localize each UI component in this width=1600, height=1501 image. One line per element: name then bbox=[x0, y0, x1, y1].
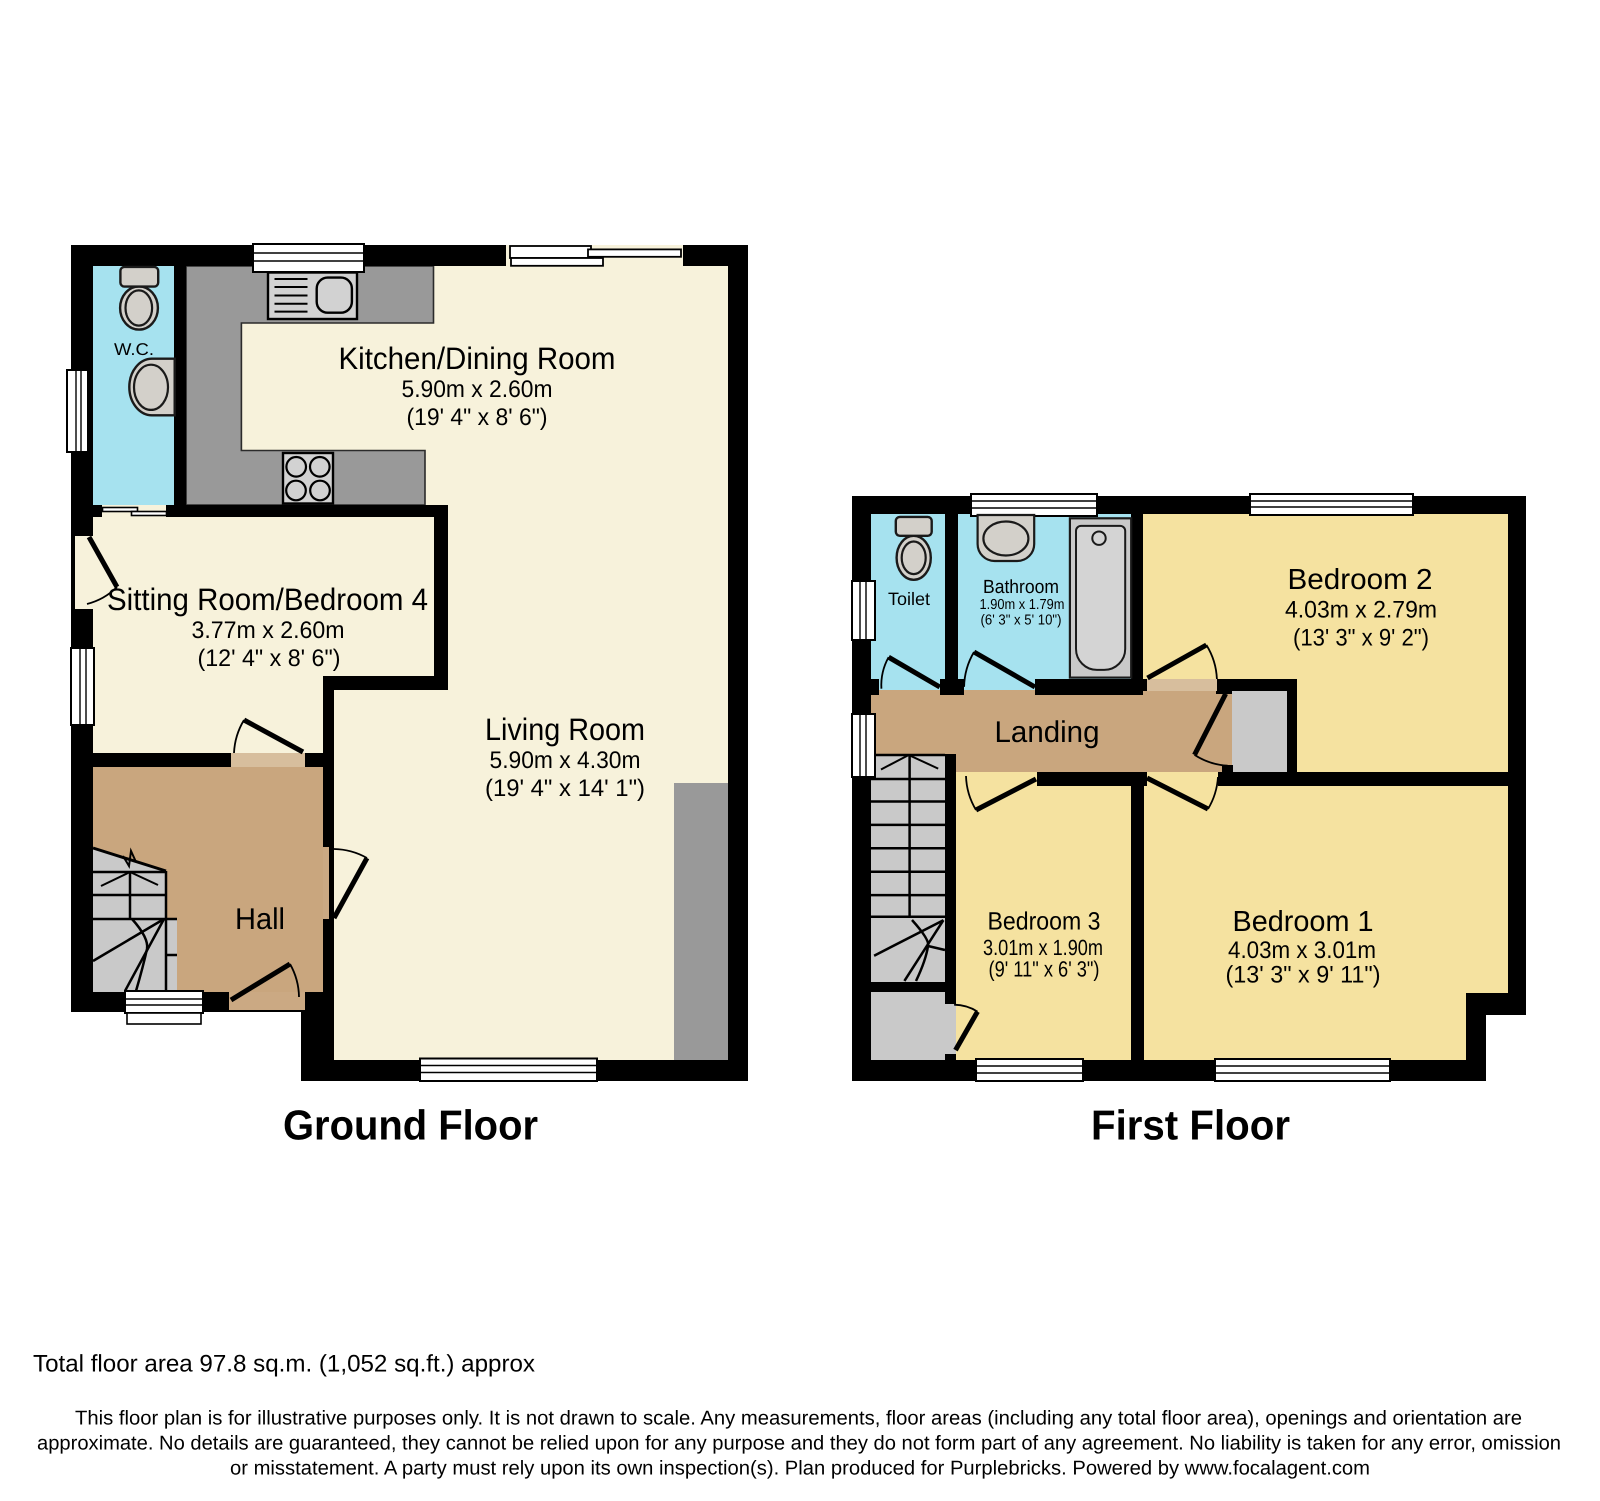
svg-text:approximate. No details are gu: approximate. No details are guaranteed, … bbox=[37, 1433, 1561, 1455]
svg-text:Hall: Hall bbox=[235, 903, 285, 936]
svg-text:(19' 4" x 8' 6"): (19' 4" x 8' 6") bbox=[407, 404, 548, 431]
svg-text:3.77m x 2.60m: 3.77m x 2.60m bbox=[192, 617, 345, 644]
svg-text:First Floor: First Floor bbox=[1091, 1102, 1290, 1149]
svg-text:(12' 4" x 8' 6"): (12' 4" x 8' 6") bbox=[198, 645, 341, 672]
svg-text:(6' 3" x 5' 10"): (6' 3" x 5' 10") bbox=[981, 613, 1062, 629]
svg-text:Bedroom 3: Bedroom 3 bbox=[988, 908, 1101, 936]
svg-text:Bedroom 2: Bedroom 2 bbox=[1288, 564, 1433, 596]
svg-text:(9' 11" x 6' 3"): (9' 11" x 6' 3") bbox=[989, 957, 1100, 982]
svg-text:Toilet: Toilet bbox=[888, 589, 930, 609]
svg-text:5.90m x 4.30m: 5.90m x 4.30m bbox=[490, 747, 641, 774]
svg-text:Ground Floor: Ground Floor bbox=[283, 1102, 538, 1149]
svg-text:Kitchen/Dining Room: Kitchen/Dining Room bbox=[339, 341, 616, 376]
svg-text:5.90m x 2.60m: 5.90m x 2.60m bbox=[402, 376, 553, 403]
svg-text:(19' 4" x 14' 1"): (19' 4" x 14' 1") bbox=[485, 775, 645, 802]
svg-text:Bathroom: Bathroom bbox=[983, 577, 1059, 598]
svg-text:This floor plan is for illustr: This floor plan is for illustrative purp… bbox=[75, 1408, 1522, 1430]
svg-text:4.03m x 3.01m: 4.03m x 3.01m bbox=[1228, 937, 1376, 964]
svg-text:Living Room: Living Room bbox=[485, 712, 645, 747]
svg-text:4.03m x 2.79m: 4.03m x 2.79m bbox=[1285, 597, 1437, 624]
svg-text:(13' 3" x 9' 11"): (13' 3" x 9' 11") bbox=[1226, 962, 1381, 989]
svg-text:Total floor area 97.8 sq.m. (1: Total floor area 97.8 sq.m. (1,052 sq.ft… bbox=[33, 1351, 535, 1378]
svg-text:Bedroom 1: Bedroom 1 bbox=[1233, 906, 1374, 938]
svg-text:(13' 3" x 9' 2"): (13' 3" x 9' 2") bbox=[1293, 625, 1429, 652]
svg-text:Sitting Room/Bedroom 4: Sitting Room/Bedroom 4 bbox=[107, 582, 428, 617]
svg-text:W.C.: W.C. bbox=[114, 340, 154, 359]
svg-text:or misstatement. A party must: or misstatement. A party must rely upon … bbox=[230, 1458, 1370, 1480]
svg-text:Landing: Landing bbox=[995, 716, 1100, 749]
svg-text:1.90m x 1.79m: 1.90m x 1.79m bbox=[980, 597, 1065, 613]
